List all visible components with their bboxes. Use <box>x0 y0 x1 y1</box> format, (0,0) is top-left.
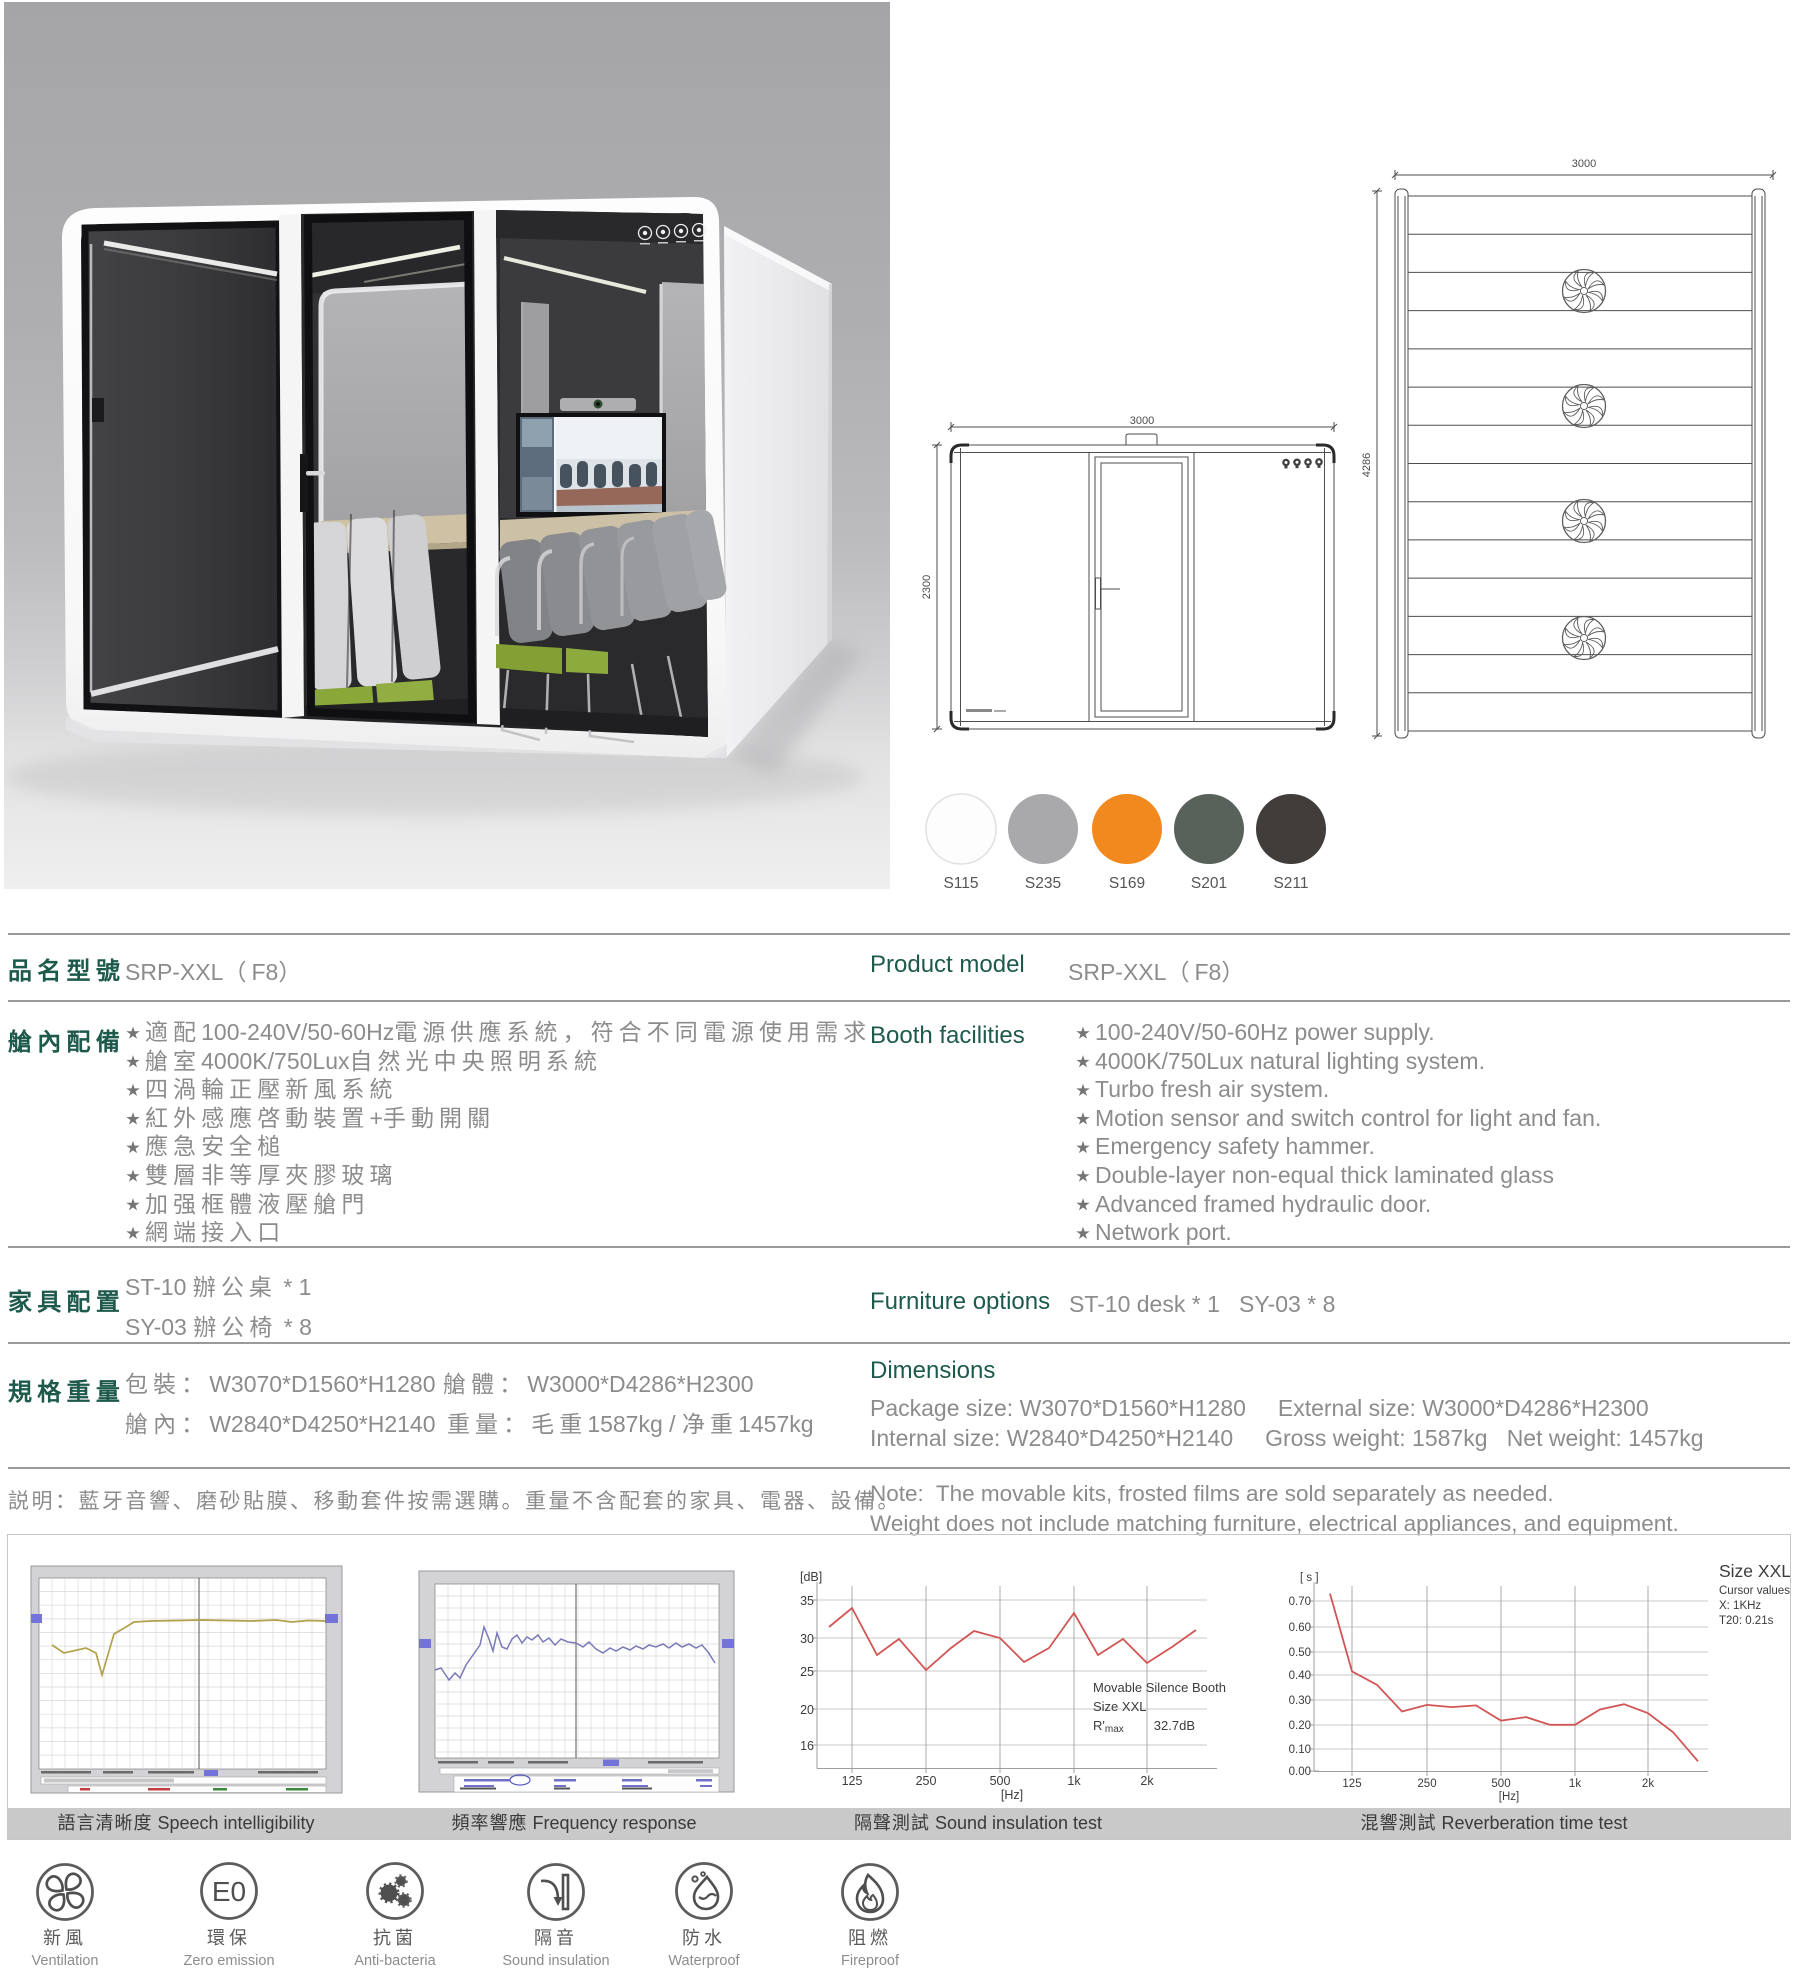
svg-text:S211: S211 <box>1273 875 1308 892</box>
svg-text:35: 35 <box>800 1594 814 1608</box>
svg-text:2k: 2k <box>1140 1774 1154 1788</box>
svg-text:1k: 1k <box>1569 1778 1581 1790</box>
svg-text:4286: 4286 <box>1362 453 1373 477</box>
svg-text:20: 20 <box>800 1703 814 1717</box>
svg-text:0.00: 0.00 <box>1289 1766 1311 1778</box>
svg-text:1k: 1k <box>1067 1774 1081 1788</box>
svg-text:[Hz]: [Hz] <box>1499 1791 1519 1803</box>
svg-text:500: 500 <box>1491 1778 1510 1790</box>
svg-text:隔音: 隔音 <box>534 1928 578 1948</box>
svg-text:防水: 防水 <box>682 1928 726 1948</box>
svg-text:25: 25 <box>800 1665 814 1679</box>
svg-text:16: 16 <box>800 1739 814 1753</box>
svg-text:250: 250 <box>1417 1778 1436 1790</box>
svg-text:S169: S169 <box>1109 875 1145 892</box>
svg-text:0.60: 0.60 <box>1289 1622 1311 1634</box>
svg-text:新風: 新風 <box>43 1928 87 1948</box>
svg-text:混響測試 Reverberation time test: 混響測試 Reverberation time test <box>1360 1813 1627 1833</box>
svg-text:0.20: 0.20 <box>1289 1720 1311 1732</box>
svg-text:Waterproof: Waterproof <box>668 1953 740 1969</box>
svg-text:阻燃: 阻燃 <box>848 1928 892 1948</box>
svg-text:X: 1KHz: X: 1KHz <box>1719 1600 1761 1612</box>
svg-text:Anti-bacteria: Anti-bacteria <box>354 1953 436 1969</box>
svg-text:[Hz]: [Hz] <box>1001 1788 1023 1802</box>
svg-text:2k: 2k <box>1642 1778 1654 1790</box>
svg-text:Ventilation: Ventilation <box>32 1953 99 1969</box>
svg-text:[dB]: [dB] <box>800 1570 822 1584</box>
svg-text:30: 30 <box>800 1632 814 1646</box>
svg-text:E0: E0 <box>212 1876 246 1907</box>
svg-text:抗菌: 抗菌 <box>373 1928 417 1948</box>
svg-text:S201: S201 <box>1191 875 1227 892</box>
svg-text:語言清晰度 Speech intelligibility: 語言清晰度 Speech intelligibility <box>57 1813 314 1833</box>
svg-text:Cursor values: Cursor values <box>1719 1585 1790 1597</box>
svg-text:S235: S235 <box>1025 875 1061 892</box>
svg-text:0.30: 0.30 <box>1289 1695 1311 1707</box>
svg-text:3000: 3000 <box>1130 415 1154 427</box>
svg-text:Zero emission: Zero emission <box>183 1953 274 1969</box>
svg-text:隔聲測試 Sound insulation test: 隔聲測試 Sound insulation test <box>854 1813 1102 1833</box>
svg-text:S115: S115 <box>943 875 978 892</box>
svg-text:3000: 3000 <box>1572 158 1596 170</box>
svg-text:0.40: 0.40 <box>1289 1670 1311 1682</box>
svg-text:2300: 2300 <box>921 575 933 599</box>
svg-text:Fireproof: Fireproof <box>841 1953 900 1969</box>
svg-text:Movable Silence Booth: Movable Silence Booth <box>1093 1680 1226 1695</box>
svg-text:125: 125 <box>842 1774 863 1788</box>
svg-text:R'max32.7dB: R'max32.7dB <box>1093 1718 1195 1735</box>
svg-text:0.50: 0.50 <box>1289 1647 1311 1659</box>
svg-text:[ s ]: [ s ] <box>1300 1572 1319 1584</box>
svg-text:T20: 0.21s: T20: 0.21s <box>1719 1615 1774 1627</box>
svg-text:Size XXL: Size XXL <box>1093 1699 1146 1714</box>
svg-text:Size XXL RT: Size XXL RT <box>1719 1561 1790 1581</box>
svg-text:0.10: 0.10 <box>1289 1744 1311 1756</box>
svg-text:250: 250 <box>916 1774 937 1788</box>
svg-text:環保: 環保 <box>207 1928 251 1948</box>
svg-text:頻率響應 Frequency response: 頻率響應 Frequency response <box>451 1812 696 1833</box>
svg-text:500: 500 <box>990 1774 1011 1788</box>
svg-text:0.70: 0.70 <box>1289 1596 1311 1608</box>
svg-text:125: 125 <box>1342 1778 1361 1790</box>
svg-text:Sound insulation: Sound insulation <box>502 1953 609 1969</box>
